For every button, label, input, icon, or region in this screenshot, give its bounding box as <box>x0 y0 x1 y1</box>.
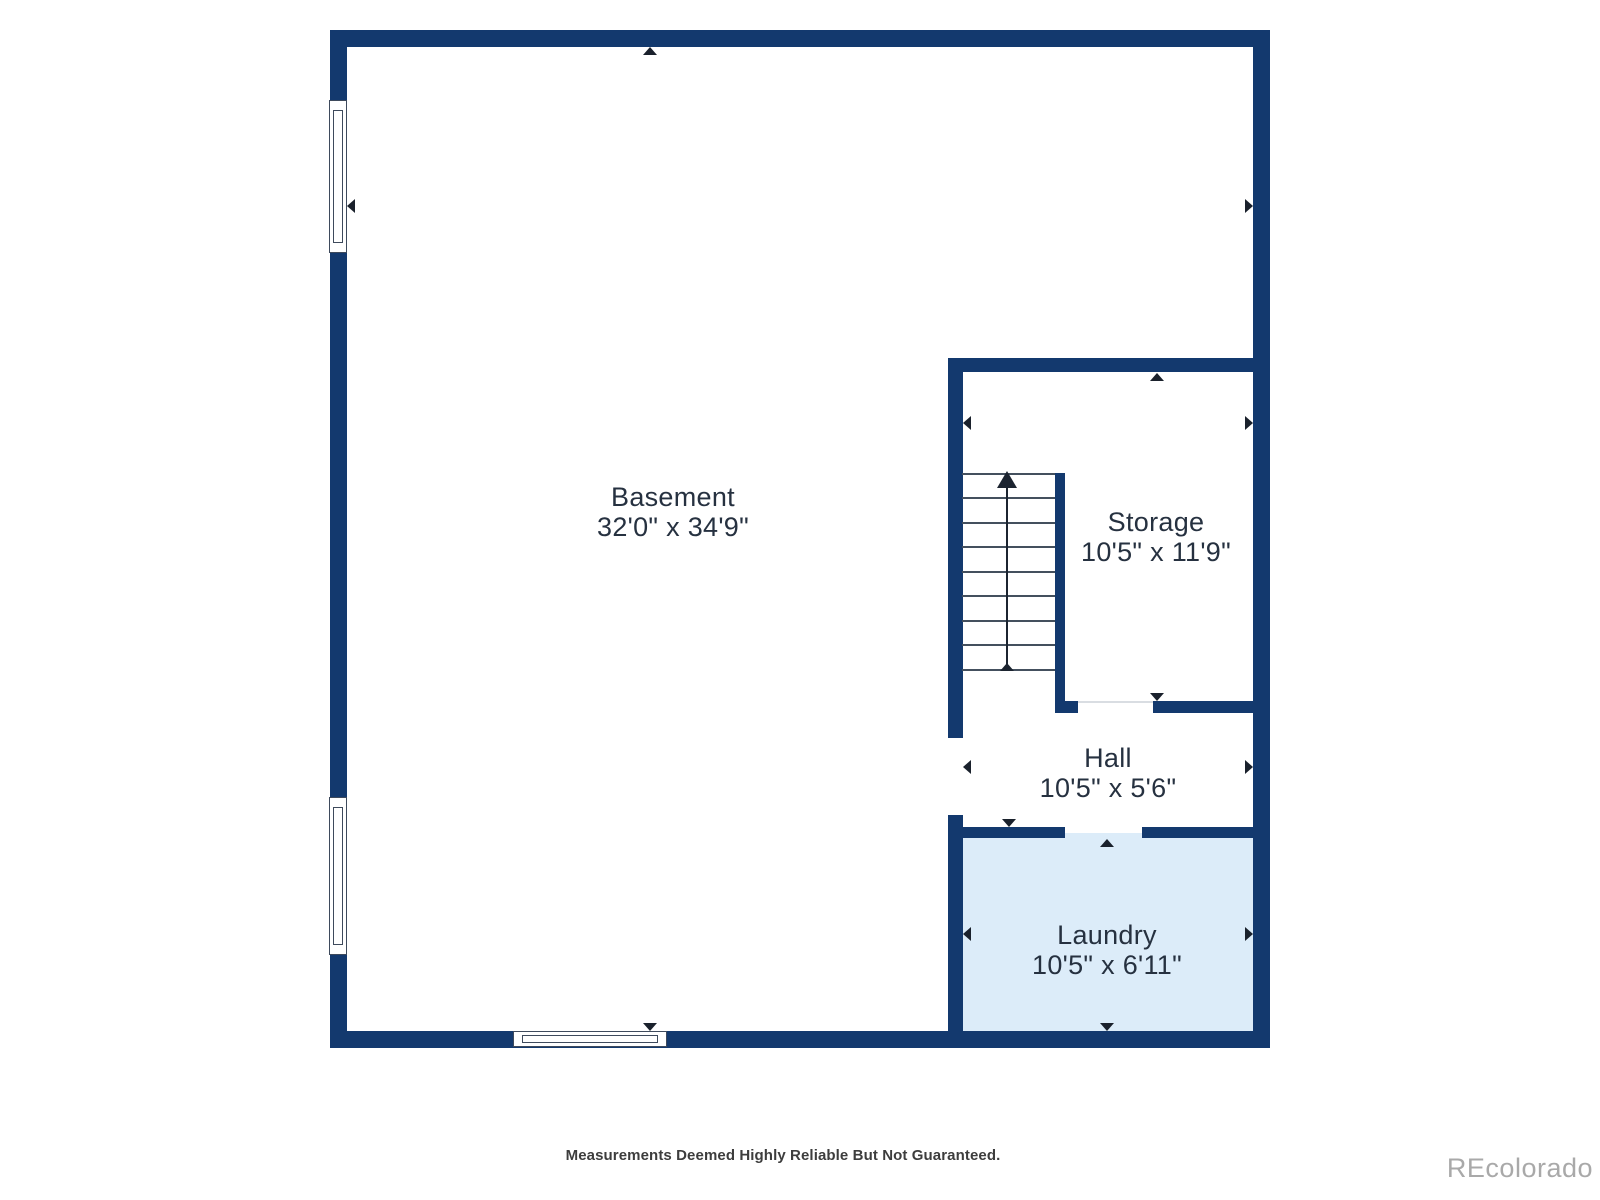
wall-stair-right <box>1055 473 1065 713</box>
stair-tread-7 <box>962 620 1055 622</box>
stair-direction-line <box>1006 478 1008 671</box>
stair-tread-3 <box>962 522 1055 524</box>
wall-hall-laundry-right <box>1142 827 1253 838</box>
window-left-lower-pane <box>333 807 343 945</box>
wall-storage-top <box>948 358 1253 372</box>
basement-dim-up-icon <box>643 47 657 55</box>
room-label-basement: Basement32'0" x 34'9" <box>597 482 749 542</box>
wall-laundry-left <box>948 815 963 1031</box>
watermark-recolorado: REcolorado <box>1447 1153 1593 1184</box>
basement-dim-right-icon <box>1245 199 1253 213</box>
room-dims-storage: 10'5" x 11'9" <box>1081 537 1231 567</box>
room-name-laundry: Laundry <box>1032 920 1182 950</box>
wall-outer-right <box>1253 30 1270 1048</box>
wall-divider-upper <box>948 358 963 738</box>
basement-dim-down-icon <box>643 1023 657 1031</box>
window-bottom <box>513 1031 667 1047</box>
laundry-dim-up-icon <box>1100 839 1114 847</box>
wall-hall-laundry-left <box>948 827 1065 838</box>
wall-outer-top <box>330 30 1270 47</box>
room-label-laundry: Laundry10'5" x 6'11" <box>1032 920 1182 980</box>
hall-dim-left-icon <box>963 760 971 774</box>
wall-stair-stub <box>1055 701 1078 713</box>
window-left-upper <box>329 100 347 253</box>
storage-dim-left-icon <box>963 416 971 430</box>
stair-tread-5 <box>962 571 1055 573</box>
stair-tread-2 <box>962 497 1055 499</box>
laundry-dim-left-icon <box>963 927 971 941</box>
room-name-hall: Hall <box>1040 743 1177 773</box>
threshold-storage-hall <box>1078 701 1153 703</box>
storage-dim-up-icon <box>1150 373 1164 381</box>
stair-tread-6 <box>962 595 1055 597</box>
wall-storage-hall-right <box>1153 701 1253 713</box>
floorplan-page: Basement32'0" x 34'9"Storage10'5" x 11'9… <box>0 0 1600 1200</box>
basement-dim-left-icon <box>347 199 355 213</box>
room-name-basement: Basement <box>597 482 749 512</box>
storage-dim-right-icon <box>1245 416 1253 430</box>
room-label-storage: Storage10'5" x 11'9" <box>1081 507 1231 567</box>
room-dims-basement: 32'0" x 34'9" <box>597 512 749 542</box>
room-label-hall: Hall10'5" x 5'6" <box>1040 743 1177 803</box>
hall-dim-down-icon <box>1002 819 1016 827</box>
window-left-upper-pane <box>333 110 343 243</box>
room-name-storage: Storage <box>1081 507 1231 537</box>
window-left-lower <box>329 797 347 955</box>
stair-arrow-head <box>997 471 1017 488</box>
laundry-dim-right-icon <box>1245 927 1253 941</box>
hall-dim-right-icon <box>1245 760 1253 774</box>
wall-outer-bottom <box>330 1031 1270 1048</box>
room-dims-laundry: 10'5" x 6'11" <box>1032 950 1182 980</box>
storage-dim-down-icon <box>1150 693 1164 701</box>
disclaimer-text: Measurements Deemed Highly Reliable But … <box>566 1147 1001 1164</box>
room-dims-hall: 10'5" x 5'6" <box>1040 773 1177 803</box>
window-bottom-pane <box>522 1035 658 1043</box>
stair-arrow-tail <box>1000 663 1014 671</box>
laundry-dim-down-icon <box>1100 1023 1114 1031</box>
floorplan: Basement32'0" x 34'9"Storage10'5" x 11'9… <box>0 0 1600 1200</box>
stair-tread-4 <box>962 546 1055 548</box>
stair-tread-8 <box>962 644 1055 646</box>
